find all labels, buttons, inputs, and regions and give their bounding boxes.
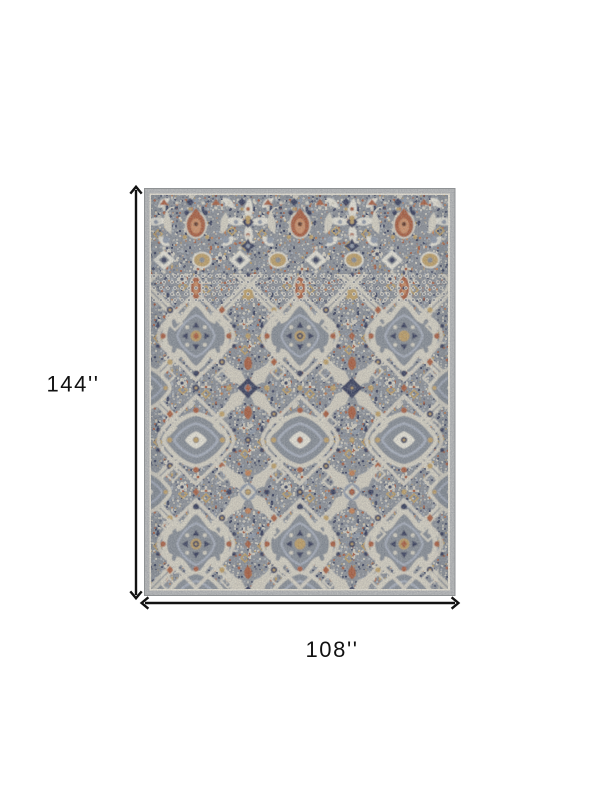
svg-text:144'': 144''	[46, 372, 99, 397]
svg-text:108'': 108''	[305, 637, 358, 662]
